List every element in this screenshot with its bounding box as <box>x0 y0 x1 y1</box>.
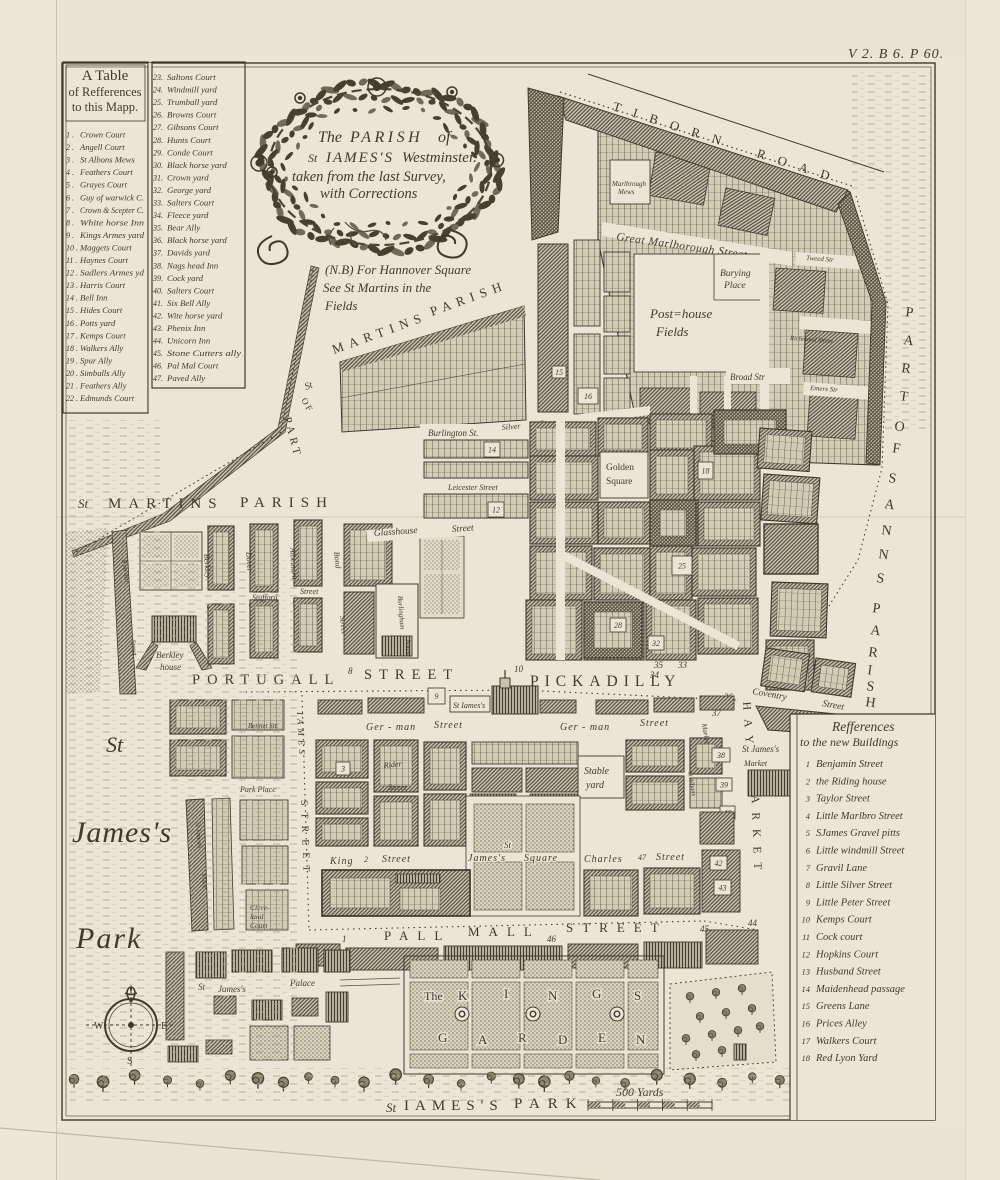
svg-text:Sadlers Armes yd: Sadlers Armes yd <box>80 268 145 278</box>
svg-text:8: 8 <box>348 666 353 676</box>
svg-text:St: St <box>308 151 318 165</box>
svg-text:Park: Park <box>75 922 142 955</box>
svg-text:45.: 45. <box>153 349 163 358</box>
svg-text:40.: 40. <box>153 286 163 295</box>
svg-text:1 .: 1 . <box>66 131 74 140</box>
svg-text:Nags head Inn: Nags head Inn <box>166 260 219 270</box>
svg-text:4 .: 4 . <box>66 168 74 177</box>
svg-text:house: house <box>404 640 413 657</box>
svg-text:5 .: 5 . <box>66 181 74 190</box>
svg-text:PARK: PARK <box>514 1096 585 1112</box>
svg-text:H: H <box>864 695 876 711</box>
svg-text:James's: James's <box>468 853 506 864</box>
svg-text:The: The <box>424 989 443 1003</box>
svg-text:Post=house: Post=house <box>649 306 712 321</box>
svg-text:Wite horse yard: Wite horse yard <box>167 310 223 320</box>
svg-text:V 2. B 6. P 60.: V 2. B 6. P 60. <box>848 47 944 62</box>
svg-text:I: I <box>504 986 508 1001</box>
svg-text:1: 1 <box>806 759 810 769</box>
svg-text:James's: James's <box>72 816 172 849</box>
svg-text:Potts yard: Potts yard <box>79 318 116 328</box>
svg-text:MALL: MALL <box>468 924 541 939</box>
svg-text:12 .: 12 . <box>66 269 78 278</box>
svg-text:The: The <box>318 129 342 146</box>
svg-text:Walkers Ally: Walkers Ally <box>80 343 123 353</box>
svg-text:6 .: 6 . <box>66 193 74 202</box>
svg-text:17: 17 <box>802 1036 811 1046</box>
svg-text:Saltons Court: Saltons Court <box>167 72 216 82</box>
svg-text:Market: Market <box>743 759 768 768</box>
svg-text:17 .: 17 . <box>66 331 78 340</box>
svg-text:St James's: St James's <box>742 744 780 754</box>
svg-text:3 .: 3 . <box>65 156 74 165</box>
svg-text:N: N <box>548 988 558 1003</box>
svg-text:PARISH: PARISH <box>349 129 423 146</box>
svg-text:Prices Alley: Prices Alley <box>815 1019 867 1030</box>
svg-text:44: 44 <box>748 918 758 928</box>
svg-text:Spur Ally: Spur Ally <box>80 355 112 365</box>
svg-text:the Riding house: the Riding house <box>816 776 887 787</box>
svg-text:32.: 32. <box>152 186 163 195</box>
svg-text:36.: 36. <box>152 236 163 245</box>
svg-text:PARISH: PARISH <box>240 495 334 511</box>
svg-text:E: E <box>598 1030 606 1045</box>
svg-text:Street: Street <box>656 852 685 863</box>
svg-text:G: G <box>438 1030 447 1045</box>
svg-text:Charles: Charles <box>584 854 623 865</box>
svg-text:41.: 41. <box>153 299 163 308</box>
svg-text:35: 35 <box>653 660 664 670</box>
svg-text:S: S <box>127 1056 133 1067</box>
svg-text:Little Silver Street: Little Silver Street <box>815 880 893 891</box>
svg-text:Red Lyon Yard: Red Lyon Yard <box>815 1053 878 1064</box>
svg-text:31.: 31. <box>152 173 163 182</box>
svg-text:St Albons Mews: St Albons Mews <box>80 155 135 165</box>
svg-text:Broad Str: Broad Str <box>730 372 765 382</box>
svg-text:Ger - man: Ger - man <box>366 722 416 733</box>
svg-text:Black horse yard: Black horse yard <box>167 235 227 245</box>
svg-text:34: 34 <box>649 670 660 680</box>
svg-text:46: 46 <box>547 934 557 944</box>
svg-text:Crown & Scepter C.: Crown & Scepter C. <box>80 205 144 215</box>
svg-text:See St Martins in the: See St Martins in the <box>323 280 432 295</box>
svg-text:A: A <box>478 1032 488 1047</box>
svg-text:15: 15 <box>802 1001 811 1011</box>
svg-text:Harris Court: Harris Court <box>79 280 126 290</box>
svg-text:Bear Ally: Bear Ally <box>167 223 200 233</box>
svg-text:Paved Ally: Paved Ally <box>166 373 205 383</box>
svg-text:Windmill yard: Windmill yard <box>167 85 217 95</box>
svg-text:Crown Court: Crown Court <box>80 130 126 140</box>
svg-text:16: 16 <box>802 1019 811 1029</box>
svg-text:Six Bell Ally: Six Bell Ally <box>167 298 210 308</box>
svg-text:2: 2 <box>364 855 368 864</box>
svg-text:Fields: Fields <box>324 298 358 313</box>
svg-text:Salters Court: Salters Court <box>167 198 215 208</box>
svg-text:Cock yard: Cock yard <box>167 273 204 283</box>
svg-text:47: 47 <box>638 853 647 862</box>
svg-text:STREET: STREET <box>566 920 668 935</box>
svg-text:Black horse yard: Black horse yard <box>167 160 227 170</box>
svg-text:St: St <box>504 840 512 850</box>
svg-text:1: 1 <box>342 934 347 944</box>
svg-text:14: 14 <box>488 445 496 454</box>
svg-text:PALL: PALL <box>384 928 451 943</box>
svg-text:Leicester Street: Leicester Street <box>447 483 498 492</box>
svg-text:25.: 25. <box>153 98 163 107</box>
svg-text:15 .: 15 . <box>66 306 78 315</box>
svg-text:21 .: 21 . <box>66 382 78 391</box>
svg-text:Salters Court: Salters Court <box>167 285 215 295</box>
svg-text:22 .: 22 . <box>66 394 78 403</box>
svg-text:Westminster.: Westminster. <box>402 150 477 166</box>
svg-text:Cock court: Cock court <box>816 932 863 943</box>
svg-text:18 .: 18 . <box>66 344 78 353</box>
svg-text:37.: 37. <box>152 249 163 258</box>
svg-text:Ger - man: Ger - man <box>560 722 610 733</box>
svg-text:29.: 29. <box>153 148 163 157</box>
svg-text:Grayes Court: Grayes Court <box>80 180 128 190</box>
svg-text:Little Marlbro Street: Little Marlbro Street <box>815 811 904 822</box>
svg-text:Benjamin Street: Benjamin Street <box>816 759 884 770</box>
svg-text:27.: 27. <box>153 123 163 132</box>
svg-text:Little windmill Street: Little windmill Street <box>815 846 905 857</box>
svg-text:Guy of warwick C.: Guy of warwick C. <box>80 192 144 202</box>
svg-text:18: 18 <box>702 466 710 475</box>
svg-text:to this Mapp.: to this Mapp. <box>72 100 138 114</box>
svg-text:Bond: Bond <box>332 551 343 570</box>
svg-text:Haynes Court: Haynes Court <box>79 255 129 265</box>
svg-text:33.: 33. <box>152 199 163 208</box>
svg-text:Angell Court: Angell Court <box>79 142 125 152</box>
svg-text:Phenix Inn: Phenix Inn <box>166 323 206 333</box>
svg-text:35.: 35. <box>152 224 163 233</box>
svg-text:Street: Street <box>300 587 319 596</box>
svg-text:Pal Mal Court: Pal Mal Court <box>166 361 219 371</box>
svg-text:3: 3 <box>805 794 810 804</box>
svg-text:Street: Street <box>388 783 407 792</box>
svg-text:13 .: 13 . <box>66 281 78 290</box>
svg-text:18: 18 <box>802 1053 811 1063</box>
svg-text:White horse Inn: White horse Inn <box>80 217 144 227</box>
svg-text:R: R <box>518 1030 527 1045</box>
svg-text:39: 39 <box>719 780 728 789</box>
svg-text:Davids yard: Davids yard <box>166 248 211 258</box>
svg-text:14 .: 14 . <box>66 294 78 303</box>
svg-text:19 .: 19 . <box>66 356 78 365</box>
svg-text:Hunts Court: Hunts Court <box>166 135 211 145</box>
svg-text:32: 32 <box>651 639 660 648</box>
svg-text:10: 10 <box>802 915 811 925</box>
svg-text:44.: 44. <box>153 337 163 346</box>
svg-text:9 .: 9 . <box>66 231 74 240</box>
svg-text:9: 9 <box>435 692 439 701</box>
svg-text:12: 12 <box>802 949 811 959</box>
svg-text:Burlington St.: Burlington St. <box>428 428 479 438</box>
svg-text:Taylor Street: Taylor Street <box>816 794 871 805</box>
svg-text:STREET: STREET <box>364 667 459 683</box>
svg-text:42: 42 <box>715 859 723 868</box>
svg-text:23.: 23. <box>153 73 163 82</box>
svg-text:Crown yard: Crown yard <box>167 172 209 182</box>
svg-text:Browns Court: Browns Court <box>167 110 217 120</box>
svg-text:Kings Armes yard: Kings Armes yard <box>79 230 145 240</box>
svg-text:Burying: Burying <box>720 269 751 279</box>
svg-text:to the new Buildings: to the new Buildings <box>800 735 899 749</box>
svg-text:St: St <box>386 1100 397 1115</box>
svg-text:33: 33 <box>677 660 688 670</box>
svg-text:Husband Street: Husband Street <box>815 967 882 978</box>
svg-text:8 .: 8 . <box>66 218 74 227</box>
svg-text:25: 25 <box>678 561 686 570</box>
svg-text:N: N <box>636 1032 646 1047</box>
svg-text:38: 38 <box>716 751 725 760</box>
svg-text:Kemps Court: Kemps Court <box>79 330 126 340</box>
svg-text:16: 16 <box>584 392 592 401</box>
svg-text:Walkers Court: Walkers Court <box>816 1036 878 1047</box>
svg-text:E: E <box>161 1021 167 1032</box>
svg-text:15: 15 <box>555 368 563 377</box>
svg-text:N: N <box>880 523 892 539</box>
svg-text:Street: Street <box>452 523 475 535</box>
svg-text:43.: 43. <box>153 324 163 333</box>
svg-text:IAMES'S: IAMES'S <box>404 1098 504 1114</box>
svg-text:Street: Street <box>382 854 411 865</box>
svg-text:A Table: A Table <box>82 68 129 84</box>
svg-text:11: 11 <box>802 932 810 942</box>
svg-text:39.: 39. <box>152 274 163 283</box>
svg-text:47.: 47. <box>153 374 163 383</box>
svg-text:42.: 42. <box>153 311 163 320</box>
svg-text:Simballs Ally: Simballs Ally <box>80 368 126 378</box>
svg-text:16 .: 16 . <box>66 319 78 328</box>
svg-text:Conde Court: Conde Court <box>167 147 213 157</box>
svg-text:Hides Court: Hides Court <box>79 305 123 315</box>
svg-text:Maggets Court: Maggets Court <box>79 242 132 252</box>
svg-text:38.: 38. <box>152 261 163 270</box>
svg-text:3: 3 <box>340 764 345 773</box>
svg-text:S: S <box>634 988 641 1003</box>
svg-text:Gravil Lane: Gravil Lane <box>816 863 867 874</box>
svg-text:with Corrections: with Corrections <box>320 186 418 202</box>
svg-text:Street: Street <box>434 720 463 731</box>
svg-text:Fleece yard: Fleece yard <box>166 210 209 220</box>
svg-text:Golden: Golden <box>606 463 634 473</box>
svg-text:20 .: 20 . <box>66 369 78 378</box>
svg-text:7 .: 7 . <box>66 206 74 215</box>
svg-text:26.: 26. <box>153 111 163 120</box>
svg-text:N: N <box>877 547 889 563</box>
svg-text:Refferences: Refferences <box>831 719 894 734</box>
svg-text:Square: Square <box>524 853 558 864</box>
svg-text:King: King <box>329 856 353 867</box>
svg-text:Street: Street <box>640 718 669 729</box>
svg-text:Kemps Court: Kemps Court <box>815 915 873 926</box>
svg-text:Stone Cutters ally: Stone Cutters ally <box>167 348 241 358</box>
svg-text:W: W <box>94 1021 104 1032</box>
svg-text:11 .: 11 . <box>66 256 77 265</box>
svg-text:Stable: Stable <box>584 766 610 777</box>
svg-text:Edmunds Court: Edmunds Court <box>79 393 135 403</box>
svg-text:D: D <box>558 1032 567 1047</box>
svg-text:taken from the last Survey,: taken from the last Survey, <box>292 169 446 185</box>
svg-text:Place: Place <box>723 281 746 291</box>
svg-text:14: 14 <box>802 984 811 994</box>
svg-text:St: St <box>106 732 124 757</box>
svg-text:Trumball yard: Trumball yard <box>167 97 218 107</box>
svg-text:K: K <box>458 988 468 1003</box>
svg-text:Little Peter Street: Little Peter Street <box>815 897 891 908</box>
svg-text:yard: yard <box>585 780 605 791</box>
svg-text:2 .: 2 . <box>66 143 74 152</box>
svg-text:Greens Lane: Greens Lane <box>816 1001 870 1012</box>
svg-text:12: 12 <box>492 505 500 514</box>
svg-text:SJames Gravel pitts: SJames Gravel pitts <box>816 828 900 839</box>
svg-text:46.: 46. <box>153 362 163 371</box>
svg-text:Silver: Silver <box>501 421 521 432</box>
svg-text:Marlbrough: Marlbrough <box>611 180 646 188</box>
svg-text:Hopkins Court: Hopkins Court <box>815 949 879 960</box>
svg-text:13: 13 <box>802 967 811 977</box>
svg-text:28.: 28. <box>153 136 163 145</box>
svg-text:10: 10 <box>514 664 524 674</box>
svg-text:of Refferences: of Refferences <box>69 85 142 99</box>
svg-text:Unicorn Inn: Unicorn Inn <box>167 336 211 346</box>
svg-text:24.: 24. <box>153 86 163 95</box>
svg-text:St Iames's: St Iames's <box>453 701 485 710</box>
svg-text:30.: 30. <box>152 161 163 170</box>
svg-text:10 .: 10 . <box>66 243 78 252</box>
svg-text:34.: 34. <box>152 211 163 220</box>
svg-text:O: O <box>893 419 905 435</box>
svg-text:G: G <box>592 986 601 1001</box>
svg-text:Feathers Ally: Feathers Ally <box>79 381 127 391</box>
svg-text:(N.B) For Hannover Square: (N.B) For Hannover Square <box>325 262 471 277</box>
svg-text:Square: Square <box>606 477 632 487</box>
svg-text:28: 28 <box>614 621 622 630</box>
svg-text:Maidenhead passage: Maidenhead passage <box>815 984 905 995</box>
svg-text:Mews: Mews <box>617 188 635 196</box>
svg-text:George yard: George yard <box>167 185 212 195</box>
svg-text:Bell Inn: Bell Inn <box>80 293 107 303</box>
svg-text:5: 5 <box>806 828 810 838</box>
svg-text:Fields: Fields <box>655 324 689 339</box>
svg-text:43: 43 <box>719 883 727 892</box>
svg-text:Gibsons Court: Gibsons Court <box>167 122 219 132</box>
svg-text:IAMES'S: IAMES'S <box>325 150 394 166</box>
svg-text:Feathers Court: Feathers Court <box>79 167 133 177</box>
